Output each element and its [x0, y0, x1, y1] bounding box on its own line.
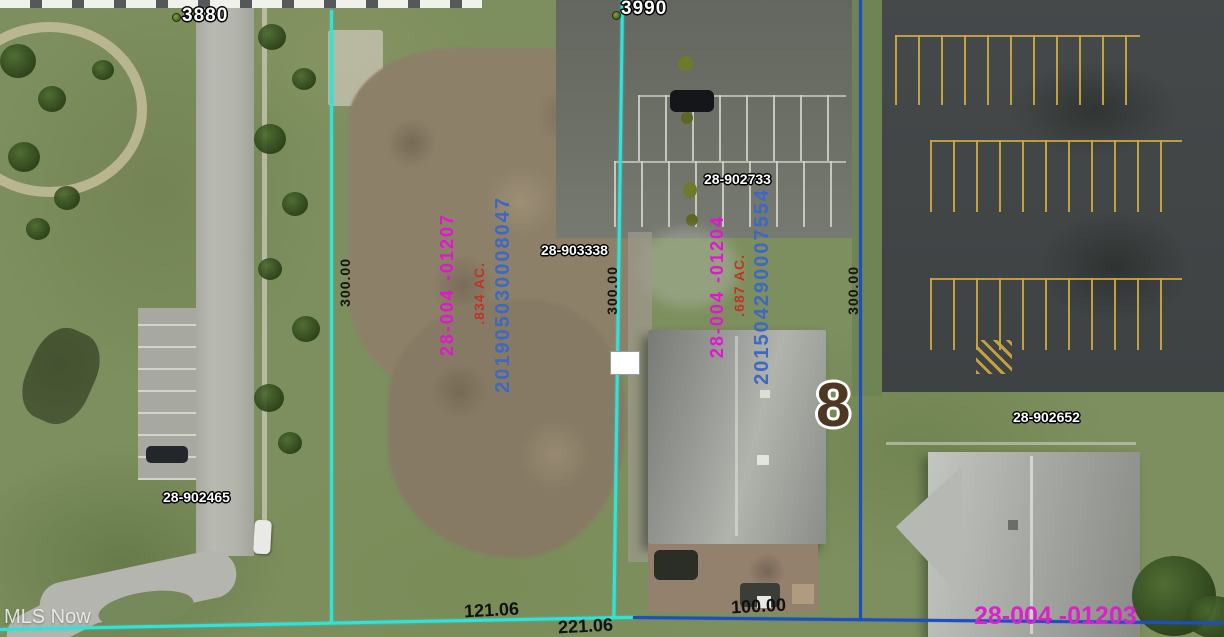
house-number-3990: 3990 — [621, 0, 667, 20]
parcel-middle-instrument: 201504290007554 — [751, 188, 774, 385]
car-dark — [146, 446, 188, 463]
parcel-left-acreage: .834 AC. — [471, 262, 487, 325]
map-badge-8[interactable]: 8 — [816, 370, 850, 441]
right-lot-sidewalk — [886, 442, 1136, 445]
dimension-middle-300: 300.00 — [604, 266, 620, 315]
parcel-left-id: 28-004 -01207 — [437, 213, 458, 356]
dimension-left-300: 300.00 — [337, 258, 353, 307]
right-lot-stripes-row1 — [895, 35, 1140, 105]
parcel-tag-28-902465: 28-902465 — [163, 489, 230, 505]
fallen-branches — [11, 319, 110, 434]
vertex-marker-square[interactable] — [610, 351, 640, 375]
tree — [8, 142, 40, 172]
bush — [683, 182, 697, 198]
car-black-lot — [670, 90, 714, 112]
roof-vent — [760, 390, 770, 398]
bush — [686, 214, 698, 226]
tree — [254, 384, 284, 412]
tree — [38, 86, 66, 112]
street-left — [196, 0, 254, 556]
tree — [258, 258, 282, 280]
patio-furniture — [654, 550, 698, 580]
patio-shed — [792, 584, 814, 604]
tree — [254, 124, 286, 154]
roof-vent — [757, 455, 769, 465]
tree — [278, 432, 302, 454]
tree — [54, 186, 80, 210]
map-canvas[interactable]: 3880 3990 28-902733 28-903338 28-902465 … — [0, 0, 1224, 637]
tree — [292, 316, 320, 342]
mls-watermark: MLS Now — [4, 606, 91, 629]
tree — [282, 192, 308, 216]
dimension-right-300: 300.00 — [845, 266, 861, 315]
bush — [678, 56, 693, 71]
tree — [26, 218, 50, 240]
parcel-tag-28-903338: 28-903338 — [541, 242, 608, 258]
building-center-ridge — [735, 336, 738, 536]
hatched-no-park — [976, 340, 1012, 374]
dimension-221: 221.06 — [557, 615, 613, 637]
chimney — [1008, 520, 1018, 530]
dimension-100: 100.00 — [730, 595, 786, 619]
parcel-middle-acreage: .687 AC. — [731, 254, 747, 317]
parcel-middle-id: 28-004 -01204 — [707, 215, 728, 358]
dimension-121: 121.06 — [463, 599, 519, 623]
parcel-bottom-right-id: 28-004 -01203 — [974, 602, 1137, 631]
rooftop-edge — [0, 0, 482, 8]
tree — [292, 68, 316, 90]
tree — [0, 44, 36, 78]
tree — [258, 24, 286, 50]
parcel-left-instrument: 201905030008047 — [492, 196, 515, 393]
tree — [92, 60, 114, 80]
right-lot-stripes-row3 — [930, 278, 1182, 350]
listing-marker-3990[interactable] — [612, 11, 621, 20]
house-number-3880: 3880 — [182, 5, 228, 27]
car-white — [253, 520, 272, 555]
bush — [681, 112, 693, 124]
listing-marker-3880[interactable] — [172, 13, 181, 22]
parcel-tag-28-902733: 28-902733 — [704, 171, 771, 187]
parcel-tag-28-902652: 28-902652 — [1013, 409, 1080, 425]
grass-strip — [852, 0, 882, 396]
boundary-cyan-left — [330, 10, 333, 623]
right-lot-stripes-row2 — [930, 140, 1182, 212]
